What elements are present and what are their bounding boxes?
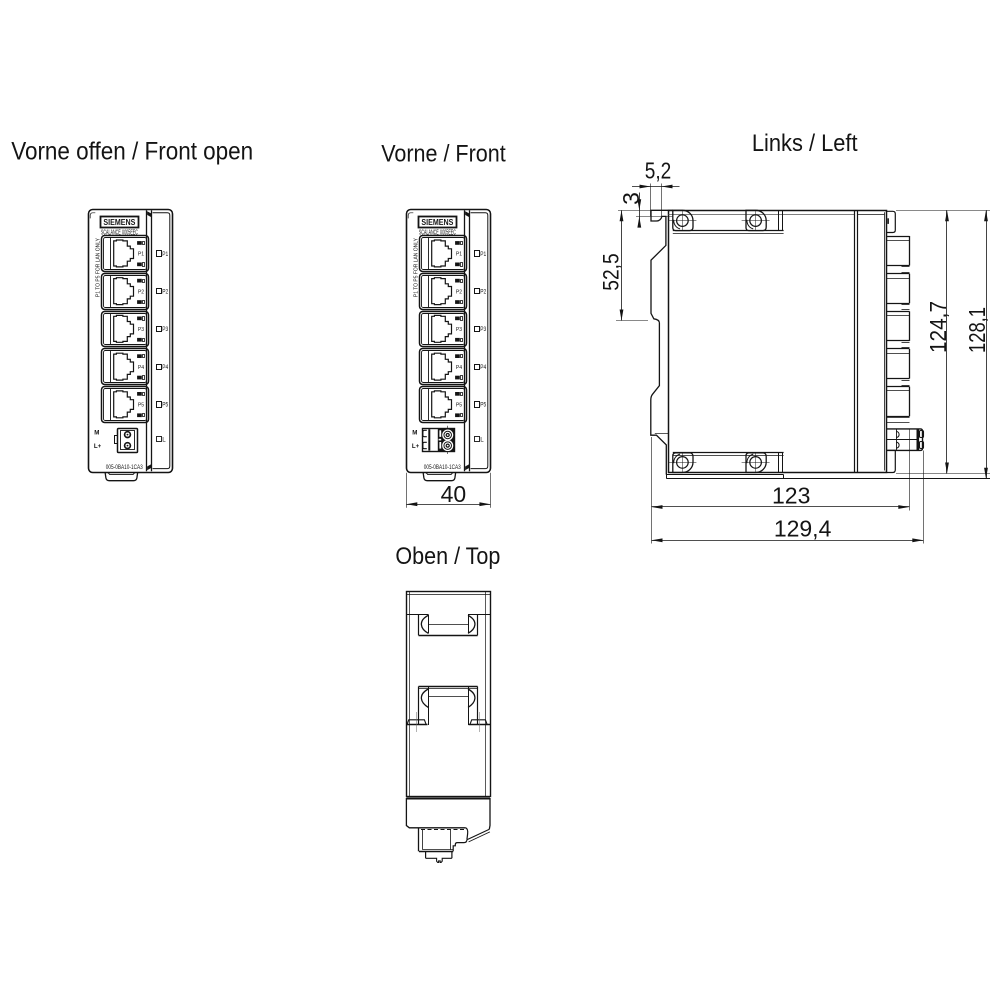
svg-text:P5: P5 [138,403,144,409]
svg-text:M: M [412,430,417,437]
svg-text:L: L [162,436,166,443]
svg-text:P4: P4 [138,365,145,371]
svg-text:Oben / Top: Oben / Top [395,543,500,570]
svg-text:P3: P3 [162,326,168,333]
svg-text:P1: P1 [456,252,462,258]
svg-text:005-0BA10-1CA3: 005-0BA10-1CA3 [424,464,461,471]
svg-text:P3: P3 [138,327,144,333]
svg-text:P5: P5 [456,403,462,409]
svg-text:P1: P1 [138,252,144,258]
svg-text:Vorne offen / Front open: Vorne offen / Front open [11,138,253,166]
svg-text:P4: P4 [456,365,463,371]
svg-text:P1 TO P5 FOR LAN ONLY: P1 TO P5 FOR LAN ONLY [413,238,419,297]
svg-text:Links / Left: Links / Left [752,131,858,157]
svg-text:123: 123 [772,483,810,509]
svg-text:P2: P2 [138,289,144,295]
svg-text:40: 40 [441,481,467,507]
svg-text:3: 3 [618,192,644,205]
svg-text:124,7: 124,7 [925,301,951,353]
svg-text:P1: P1 [162,251,168,258]
svg-text:P4: P4 [162,364,168,371]
svg-text:P3: P3 [456,327,462,333]
svg-text:P2: P2 [456,289,462,295]
svg-text:129,4: 129,4 [774,516,832,542]
svg-text:P2: P2 [480,289,486,296]
svg-text:SIEMENS: SIEMENS [103,218,135,227]
svg-text:P4: P4 [480,364,486,371]
svg-text:L+: L+ [94,443,102,450]
svg-text:P5: P5 [480,402,486,409]
svg-text:P2: P2 [162,289,168,296]
svg-text:128,1: 128,1 [964,307,990,353]
svg-text:P5: P5 [162,402,168,409]
svg-text:P1 TO P5 FOR LAN ONLY: P1 TO P5 FOR LAN ONLY [95,238,101,297]
svg-text:L+: L+ [412,443,420,450]
svg-text:M: M [94,430,99,437]
svg-text:P3: P3 [480,326,486,333]
svg-text:Vorne / Front: Vorne / Front [381,140,506,167]
svg-text:P1: P1 [480,251,486,258]
svg-text:L: L [480,436,484,443]
svg-text:005-0BA10-1CA3: 005-0BA10-1CA3 [106,464,143,471]
svg-text:52,5: 52,5 [599,253,624,291]
svg-text:5,2: 5,2 [645,158,672,184]
svg-text:SIEMENS: SIEMENS [421,218,453,227]
